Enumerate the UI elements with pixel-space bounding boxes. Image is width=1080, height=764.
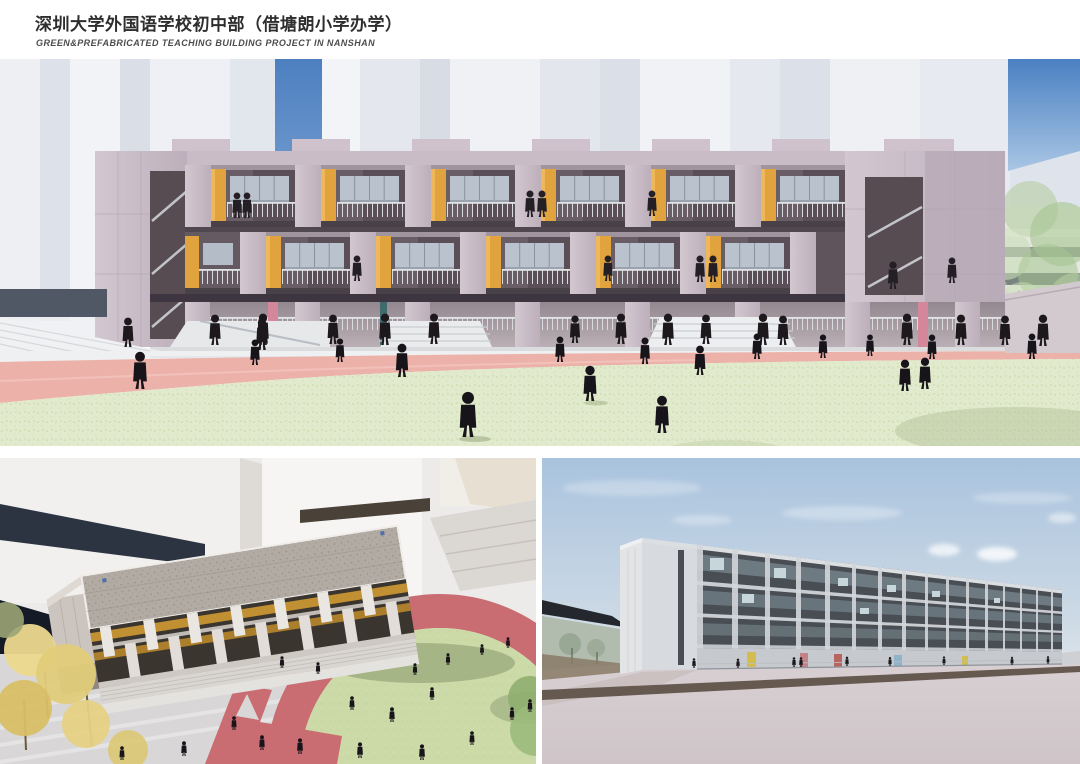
aerial-view-svg	[0, 458, 536, 764]
floor-slab	[185, 227, 845, 232]
stair-tower-left	[95, 151, 187, 347]
project-title: 深圳大学外国语学校初中部（借塘朗小学办学）	[35, 10, 403, 35]
render-aerial-view	[0, 458, 536, 764]
module-row-lower	[185, 232, 845, 294]
module-row-upper	[185, 165, 845, 227]
teaching-building	[95, 139, 1005, 353]
street-view-svg	[542, 458, 1080, 764]
render-main-elevation	[0, 59, 1080, 446]
stair-tower-right	[845, 151, 1005, 302]
stair-bay	[642, 538, 697, 670]
end-facade	[620, 538, 642, 674]
render-street-view	[542, 458, 1080, 764]
main-elevation-svg	[0, 59, 1080, 446]
board-header: 深圳大学外国语学校初中部（借塘朗小学办学） GREEN&PREFABRICATE…	[35, 10, 403, 48]
project-subtitle: GREEN&PREFABRICATED TEACHING BUILDING PR…	[36, 38, 403, 48]
presentation-board: 深圳大学外国语学校初中部（借塘朗小学办学） GREEN&PREFABRICATE…	[0, 0, 1080, 764]
